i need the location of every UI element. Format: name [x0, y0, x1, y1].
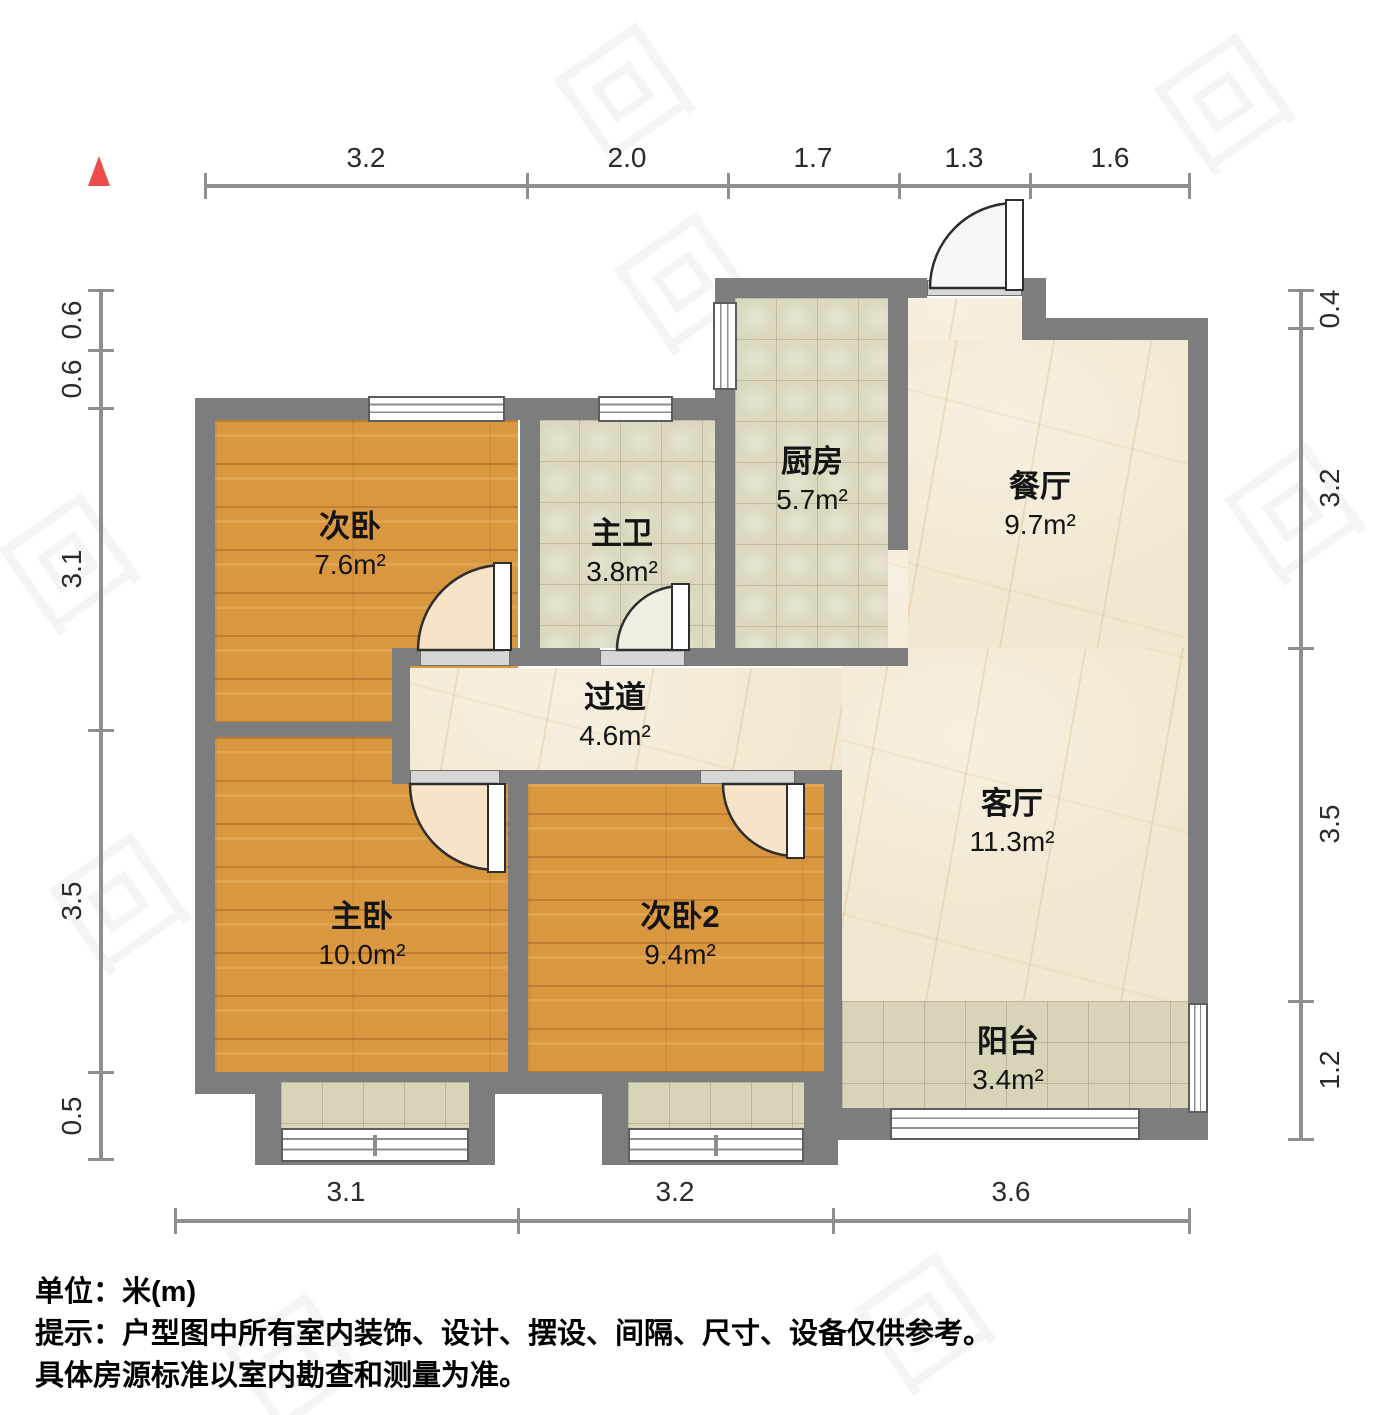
- dimension-line-left: [99, 290, 103, 1160]
- dimension-line-top: [205, 184, 1190, 188]
- tick: [1188, 1208, 1191, 1234]
- door-leaf-bath: [672, 584, 689, 650]
- room-name: 阳台: [972, 1023, 1044, 1062]
- tick: [88, 407, 114, 410]
- dim-label: 0.4: [1314, 290, 1346, 329]
- dim-label: 0.6: [56, 301, 88, 340]
- room-area: 9.7m²: [1004, 507, 1076, 542]
- dim-label: 1.2: [1314, 1051, 1346, 1090]
- tick: [174, 1208, 177, 1234]
- door-leaf-master: [488, 784, 505, 872]
- tick: [1029, 173, 1032, 199]
- tick: [88, 1158, 114, 1161]
- room-label-dining: 餐厅 9.7m²: [1004, 468, 1076, 542]
- room-area: 3.4m²: [972, 1062, 1044, 1097]
- door-leaf-bedroom2: [494, 563, 511, 650]
- room-name: 过道: [579, 679, 651, 718]
- dimension-line-bottom: [175, 1219, 1190, 1223]
- tick: [1288, 1138, 1314, 1141]
- dim-label: 3.2: [1314, 469, 1346, 508]
- door-arc-master: [410, 784, 496, 870]
- tick: [1288, 1000, 1314, 1003]
- room-name: 主卫: [586, 515, 658, 554]
- floorplan-canvas: 回 回 回 回 回 回 回 回 回: [0, 0, 1397, 1415]
- dim-label: 0.5: [56, 1097, 88, 1136]
- room-name: 主卧: [318, 898, 405, 937]
- dim-label: 3.2: [656, 1176, 695, 1208]
- door-arc-bedroom2: [418, 565, 503, 650]
- room-area: 10.0m²: [318, 937, 405, 972]
- door-arc-bedroom3: [723, 784, 795, 856]
- dim-label: 1.6: [1091, 142, 1130, 174]
- room-label-balcony: 阳台 3.4m²: [972, 1023, 1044, 1097]
- dim-label: 3.5: [1314, 805, 1346, 844]
- room-label-living: 客厅 11.3m²: [969, 785, 1054, 859]
- room-area: 3.8m²: [586, 554, 658, 589]
- dimension-line-right: [1299, 290, 1303, 1140]
- tick: [517, 1208, 520, 1234]
- room-label-bedroom2: 次卧 7.6m²: [314, 508, 386, 582]
- room-name: 厨房: [776, 443, 848, 482]
- tick: [1188, 173, 1191, 199]
- tick: [727, 173, 730, 199]
- room-label-bedroom3: 次卧2 9.4m²: [640, 898, 719, 972]
- tick: [1288, 289, 1314, 292]
- note-unit: 单位：米(m): [35, 1268, 196, 1310]
- tick: [88, 729, 114, 732]
- room-area: 11.3m²: [969, 824, 1054, 859]
- dim-label: 3.2: [347, 142, 386, 174]
- tick: [1288, 647, 1314, 650]
- dim-label: 1.7: [794, 142, 833, 174]
- note-tip2: 具体房源标准以室内勘查和测量为准。: [35, 1352, 528, 1394]
- doors-layer: [0, 0, 1397, 1415]
- room-area: 5.7m²: [776, 482, 848, 517]
- room-label-master: 主卧 10.0m²: [318, 898, 405, 972]
- room-area: 4.6m²: [579, 718, 651, 753]
- dim-label: 3.6: [992, 1176, 1031, 1208]
- room-area: 7.6m²: [314, 547, 386, 582]
- door-arc-entry: [930, 203, 1015, 288]
- room-name: 客厅: [969, 785, 1054, 824]
- dim-label: 3.1: [327, 1176, 366, 1208]
- room-name: 次卧: [314, 508, 386, 547]
- dim-label: 0.6: [56, 360, 88, 399]
- room-name: 次卧2: [640, 898, 719, 937]
- room-label-bath: 主卫 3.8m²: [586, 515, 658, 589]
- room-name: 餐厅: [1004, 468, 1076, 507]
- tick: [898, 173, 901, 199]
- door-leaf-entry: [1006, 200, 1023, 290]
- note-tip: 提示：户型图中所有室内装饰、设计、摆设、间隔、尺寸、设备仅供参考。: [35, 1310, 992, 1352]
- room-area: 9.4m²: [640, 937, 719, 972]
- tick: [88, 289, 114, 292]
- dim-label: 3.1: [56, 550, 88, 589]
- room-label-hallway: 过道 4.6m²: [579, 679, 651, 753]
- tick: [832, 1208, 835, 1234]
- tick: [526, 173, 529, 199]
- dim-label: 2.0: [608, 142, 647, 174]
- tick: [1288, 327, 1314, 330]
- tick: [88, 349, 114, 352]
- room-label-kitchen: 厨房 5.7m²: [776, 443, 848, 517]
- door-leaf-bedroom3: [787, 784, 804, 858]
- tick: [88, 1071, 114, 1074]
- dim-label: 3.5: [56, 882, 88, 921]
- dim-label: 1.3: [945, 142, 984, 174]
- tick: [204, 173, 207, 199]
